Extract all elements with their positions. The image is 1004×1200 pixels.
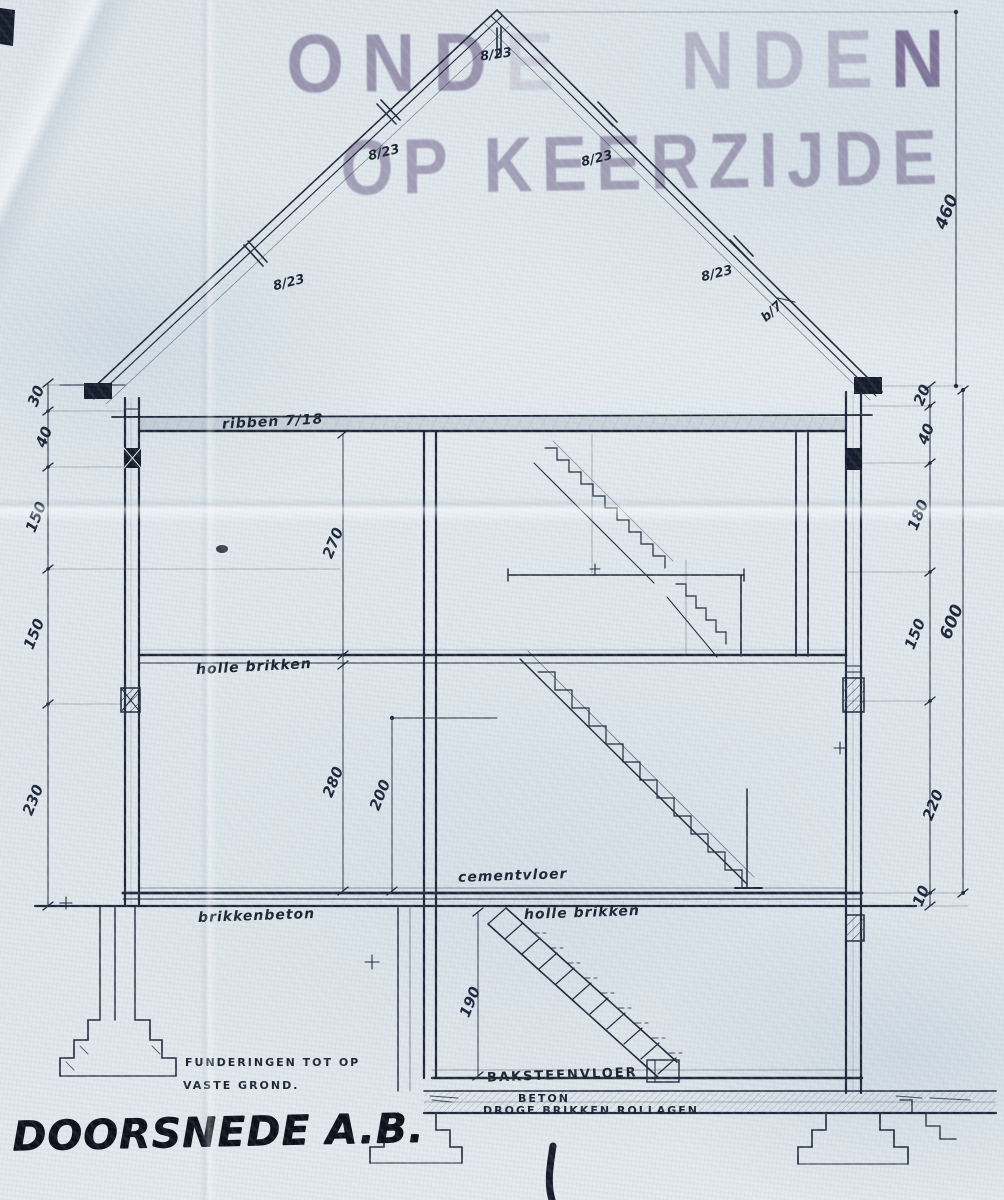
ink-smudge bbox=[0, 8, 15, 46]
stairs bbox=[488, 441, 762, 1082]
floors bbox=[35, 415, 996, 1113]
paper-background: ONDE NDEN OP KEERZIJDE bbox=[0, 0, 1004, 1200]
label-dry-bricks: DROGE BRIKKEN ROLLAGEN. bbox=[483, 1104, 705, 1117]
ink-smudge bbox=[216, 545, 228, 553]
label-foundation-note-1: FUNDERINGEN TOT OP bbox=[185, 1056, 360, 1069]
dimension-lines bbox=[43, 10, 968, 1080]
drawing-title: DOORSNEDE A.B. bbox=[12, 1104, 425, 1161]
roof bbox=[88, 10, 956, 404]
cross-section-drawing bbox=[0, 0, 1004, 1200]
pencil-mark bbox=[549, 1146, 553, 1200]
label-foundation-note-2: VASTE GROND. bbox=[183, 1079, 299, 1092]
